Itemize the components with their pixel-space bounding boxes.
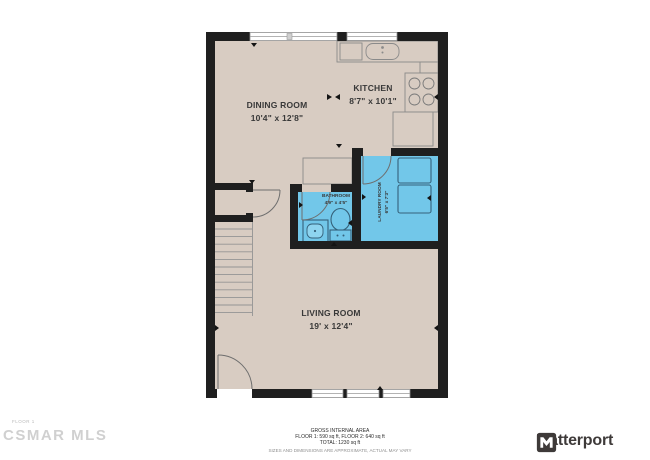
counter bbox=[303, 158, 352, 184]
dishwasher bbox=[340, 43, 362, 60]
room-dims: 10'4" x 12'8" bbox=[247, 112, 308, 125]
room-dims: 8'7" x 10'1" bbox=[349, 95, 397, 108]
floorplan-page: DINING ROOM 10'4" x 12'8" KITCHEN 8'7" x… bbox=[0, 0, 650, 460]
room-name: LIVING ROOM bbox=[301, 307, 360, 320]
faucet-dot bbox=[381, 46, 384, 49]
dining-room-label: DINING ROOM 10'4" x 12'8" bbox=[247, 99, 308, 125]
matterport-icon bbox=[536, 432, 557, 453]
stove bbox=[405, 73, 438, 112]
living-room-label: LIVING ROOM 19' x 12'4" bbox=[301, 307, 360, 333]
kitchen-label: KITCHEN 8'7" x 10'1" bbox=[349, 82, 397, 108]
area-summary: GROSS INTERNAL AREA FLOOR 1: 590 sq ft, … bbox=[190, 429, 490, 453]
fridge bbox=[393, 112, 433, 146]
room-name: DINING ROOM bbox=[247, 99, 308, 112]
toilet-tank bbox=[330, 230, 351, 241]
total-area: TOTAL: 1230 sq ft bbox=[190, 441, 490, 447]
room-name: KITCHEN bbox=[349, 82, 397, 95]
bathroom-label: BATHROOM 4'9" x 4'5" bbox=[322, 193, 350, 207]
mls-watermark: CSMAR MLS bbox=[3, 427, 107, 444]
laundry-room-label: LAUNDRY ROOM 6'5" x 7'3" bbox=[377, 182, 391, 221]
room-name: LAUNDRY ROOM bbox=[377, 182, 384, 221]
room-dims: 6'5" x 7'3" bbox=[384, 182, 391, 221]
entry-door-gap bbox=[217, 390, 252, 398]
toilet-bowl bbox=[331, 209, 350, 231]
floor-number-label: FLOOR 1 bbox=[12, 419, 35, 424]
room-dims: 19' x 12'4" bbox=[301, 320, 360, 333]
room-dims: 4'9" x 4'5" bbox=[322, 200, 350, 207]
floorplan-drawing bbox=[0, 0, 650, 460]
room-name: BATHROOM bbox=[322, 193, 350, 200]
matterport-logo: Matterport bbox=[536, 432, 613, 450]
drain-dot bbox=[382, 52, 384, 54]
washer bbox=[398, 158, 431, 183]
laundry-fixtures bbox=[398, 158, 431, 213]
disclaimer: SIZES AND DIMENSIONS ARE APPROXIMATE, AC… bbox=[190, 448, 490, 453]
dryer bbox=[398, 185, 431, 213]
